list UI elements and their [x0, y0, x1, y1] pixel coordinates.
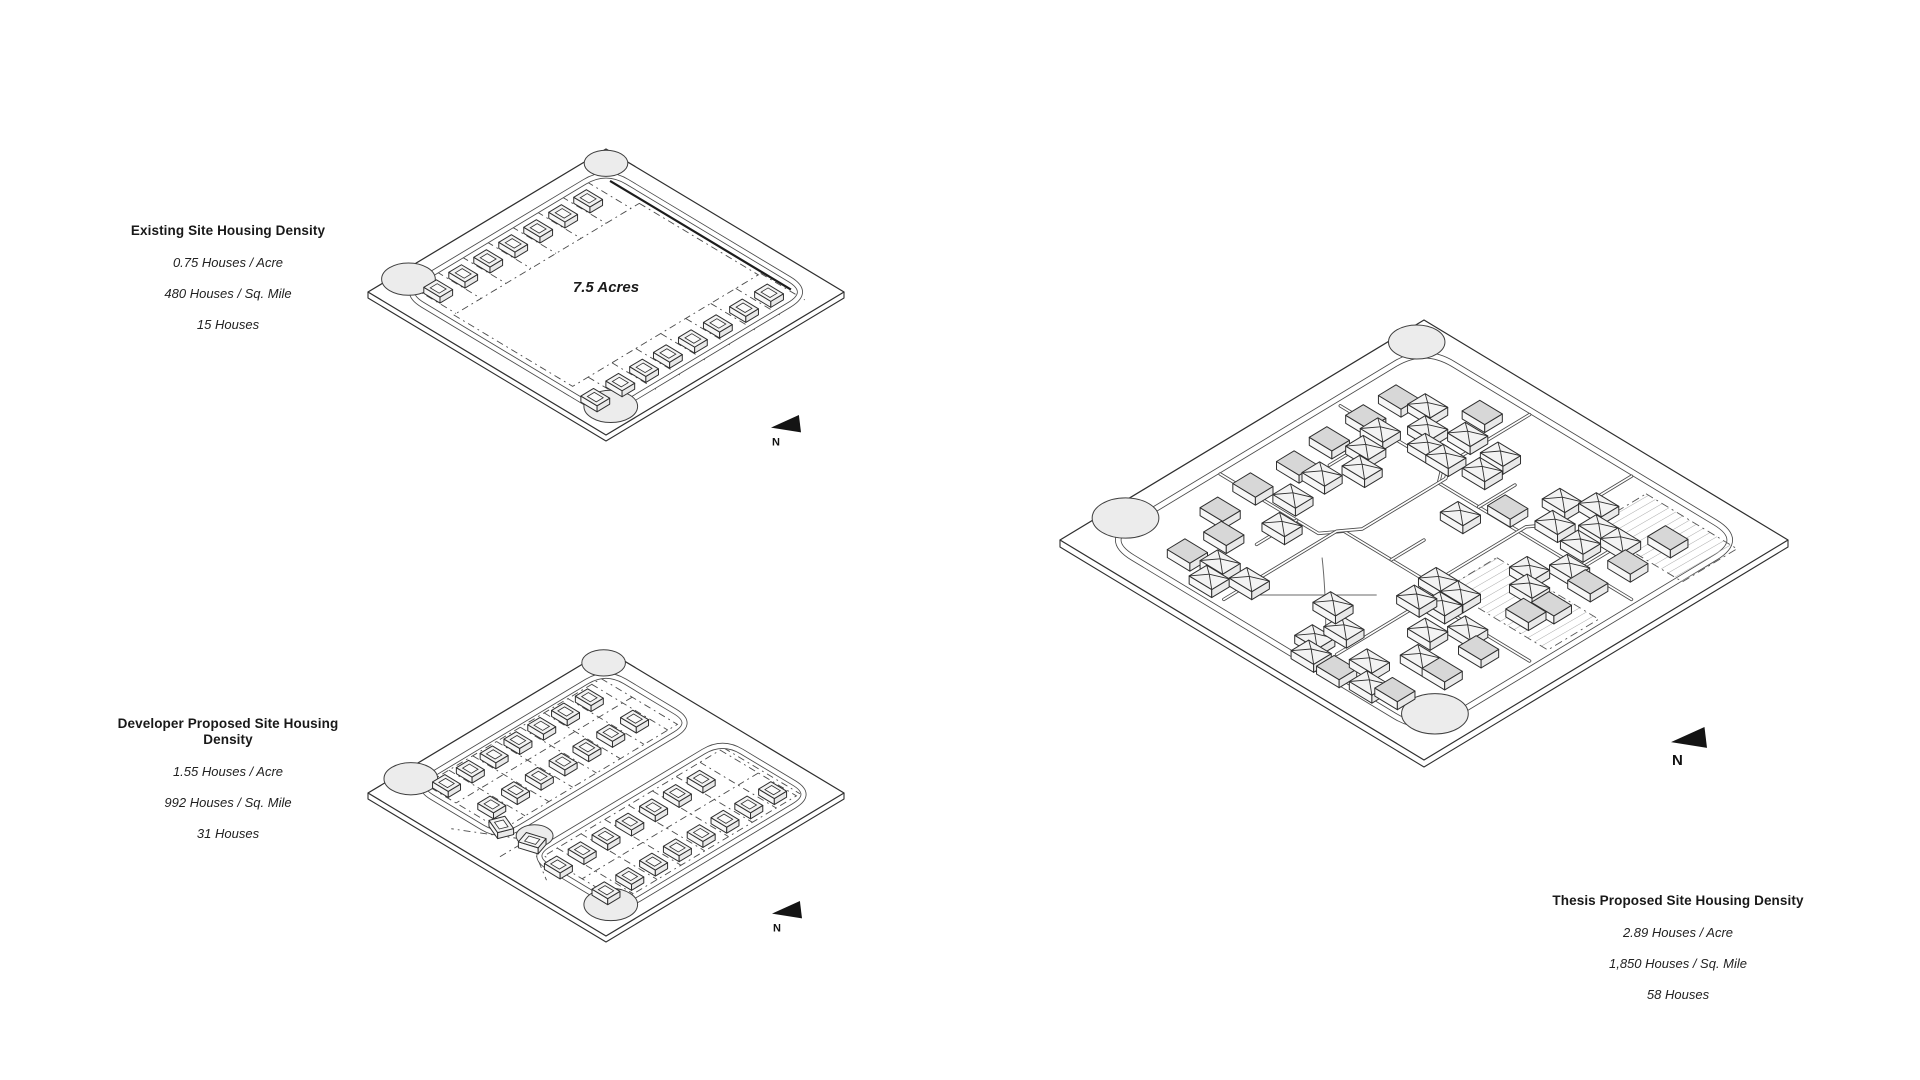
- area-label: 7.5 Acres: [573, 279, 639, 296]
- pond: [582, 650, 626, 676]
- existing-density-title: Existing Site Housing Density: [58, 223, 398, 239]
- north-arrow-icon: [1671, 727, 1707, 748]
- pond: [584, 150, 628, 176]
- pond: [384, 763, 438, 795]
- thesis-density-per-acre: 2.89 Houses / Acre: [1528, 925, 1828, 940]
- thesis-house-count: 58 Houses: [1528, 987, 1828, 1002]
- pond: [1092, 498, 1159, 538]
- developer-density-title: Developer Proposed Site Housing Density: [103, 716, 353, 748]
- thesis-density-per-sqmile: 1,850 Houses / Sq. Mile: [1528, 956, 1828, 971]
- north-arrow-icon: [772, 901, 802, 918]
- site-plan-thesis: N: [1060, 320, 1788, 769]
- existing-density-per-acre: 0.75 Houses / Acre: [58, 255, 398, 270]
- north-label: N: [1672, 752, 1683, 769]
- north-arrow: N: [772, 901, 802, 934]
- pond: [1388, 325, 1444, 359]
- north-arrow: N: [771, 415, 801, 448]
- developer-density-label: Developer Proposed Site Housing Density …: [103, 716, 353, 841]
- existing-density-label: Existing Site Housing Density 0.75 House…: [58, 223, 398, 332]
- developer-density-per-acre: 1.55 Houses / Acre: [103, 764, 353, 779]
- developer-house-count: 31 Houses: [103, 826, 353, 841]
- existing-house-count: 15 Houses: [58, 317, 398, 332]
- existing-density-per-sqmile: 480 Houses / Sq. Mile: [58, 286, 398, 301]
- north-arrow-icon: [771, 415, 801, 432]
- north-label: N: [772, 436, 780, 448]
- density-comparison-page: 7.5 AcresNNN Existing Site Housing Densi…: [0, 0, 1920, 1080]
- thesis-density-label: Thesis Proposed Site Housing Density 2.8…: [1528, 893, 1828, 1002]
- site-plan-developer: N: [368, 650, 844, 942]
- north-arrow: N: [1671, 727, 1707, 769]
- developer-density-per-sqmile: 992 Houses / Sq. Mile: [103, 795, 353, 810]
- site-plan-existing: 7.5 AcresN: [368, 149, 844, 448]
- thesis-density-title: Thesis Proposed Site Housing Density: [1528, 893, 1828, 909]
- north-label: N: [773, 922, 781, 934]
